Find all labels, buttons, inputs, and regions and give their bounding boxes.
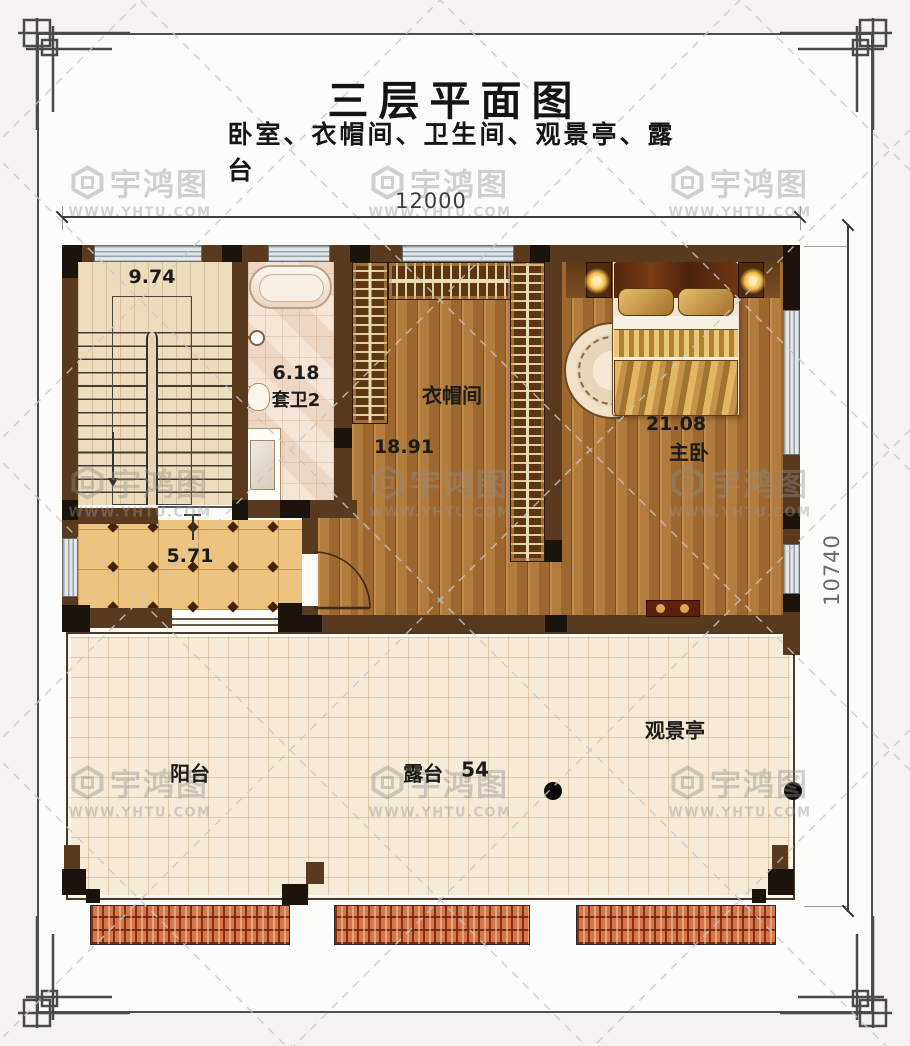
wall-segment <box>62 605 90 632</box>
door-tick <box>192 516 194 540</box>
wall-segment <box>545 540 562 562</box>
door-swing-arc <box>300 548 376 614</box>
stair-direction-arrow <box>112 432 114 478</box>
corner-ornament-icon <box>0 0 130 130</box>
pillar <box>752 889 766 903</box>
page-subtitle: 卧室、衣帽间、卫生间、观景亭、露台 <box>228 115 683 187</box>
dimension-line-top <box>62 216 800 218</box>
sink-basin <box>250 440 275 490</box>
window <box>94 245 202 262</box>
wall-segment <box>783 455 800 513</box>
wall-segment <box>334 262 352 428</box>
wall-segment <box>783 513 800 529</box>
stair-rail <box>146 332 158 505</box>
wall-segment <box>232 500 248 520</box>
pavilion-column <box>544 782 562 800</box>
window <box>783 310 800 455</box>
wall-segment <box>280 500 310 518</box>
wall-segment <box>62 597 78 605</box>
wall-segment <box>82 245 94 262</box>
pillar <box>62 869 86 895</box>
wall-segment <box>330 245 350 262</box>
wall-segment <box>783 245 800 310</box>
wall-segment <box>62 262 78 278</box>
pavilion-column <box>784 782 802 800</box>
vanity-sink <box>243 428 281 502</box>
room-label-bathroom-area: 6.18 <box>273 362 320 384</box>
lamp-glow <box>584 268 610 294</box>
floor-plan-page: 三层平面图 卧室、衣帽间、卫生间、观景亭、露台 <box>0 0 910 1046</box>
dimension-height-label: 10740 <box>820 534 844 606</box>
room-label-bathroom-name: 套卫2 <box>272 386 321 412</box>
wall-segment <box>545 615 567 632</box>
pillar <box>86 889 100 903</box>
terrace-step-line <box>172 618 278 620</box>
window <box>62 538 78 597</box>
wall-segment <box>350 245 370 262</box>
window <box>268 245 330 262</box>
wall-segment <box>322 615 545 632</box>
room-label-balcony: 阳台 <box>170 758 210 787</box>
bed-end-bench <box>646 600 700 617</box>
window <box>783 544 800 594</box>
corner-ornament-icon <box>780 916 910 1046</box>
room-label-master-area: 21.08 <box>646 413 706 435</box>
wall-segment <box>278 603 302 632</box>
window <box>402 245 514 262</box>
wall-segment <box>232 262 248 500</box>
roof-tiles <box>576 905 776 945</box>
room-label-stairwell-area: 9.74 <box>129 266 176 288</box>
wall-segment <box>248 500 280 518</box>
dimension-line-right <box>847 224 849 912</box>
terrace-area: 54 <box>461 758 489 787</box>
roof-tiles <box>90 905 290 945</box>
toilet <box>247 383 270 411</box>
bathtub-basin <box>259 274 324 302</box>
pillar <box>772 845 788 871</box>
dimension-width-label: 12000 <box>395 189 467 213</box>
pillow <box>618 288 674 316</box>
terrace-name: 露台 <box>403 758 443 787</box>
bench-knob <box>656 604 665 613</box>
room-label-cloakroom-area: 18.91 <box>374 436 434 458</box>
roof-tiles <box>334 905 530 945</box>
extension-line <box>804 246 848 247</box>
door-tick <box>184 514 201 516</box>
lamp-glow <box>740 268 766 294</box>
wall-segment <box>62 500 78 520</box>
wall-segment <box>334 428 352 448</box>
pillar <box>768 869 794 895</box>
wall-segment <box>545 262 562 540</box>
wall-segment <box>78 508 158 524</box>
wall-segment <box>242 245 268 262</box>
wall-segment <box>530 245 550 262</box>
wall-segment <box>783 612 800 655</box>
pillar <box>306 862 324 884</box>
bed-runner <box>614 329 738 359</box>
pillar <box>282 884 308 905</box>
wall-segment <box>567 615 783 632</box>
bathtub <box>249 265 332 309</box>
shower-head <box>249 330 265 346</box>
room-label-hall-area: 5.71 <box>167 545 214 567</box>
wall-segment <box>783 529 800 544</box>
bench-knob <box>680 604 689 613</box>
wardrobe-top <box>388 262 512 300</box>
wall-segment <box>300 615 322 632</box>
pillar <box>64 845 80 871</box>
wall-segment <box>370 245 402 262</box>
terrace-step-line <box>172 624 278 626</box>
stair-arrow-head-icon <box>108 478 118 487</box>
room-label-pavilion: 观景亭 <box>645 715 705 744</box>
wall-segment <box>62 278 78 500</box>
wall-segment <box>62 245 82 262</box>
stair-edge-line <box>158 506 232 508</box>
wall-segment <box>550 245 783 262</box>
room-label-master-name: 主卧 <box>669 437 709 466</box>
wall-segment <box>310 500 357 518</box>
wall-segment <box>222 245 242 262</box>
corner-ornament-icon <box>780 0 910 130</box>
wall-segment <box>514 245 530 262</box>
room-label-cloakroom-name: 衣帽间 <box>422 380 482 409</box>
wall-segment <box>202 245 222 262</box>
wall-segment <box>90 608 172 628</box>
room-label-terrace: 露台 54 <box>403 758 489 787</box>
pillow <box>678 288 734 316</box>
wardrobe-right <box>510 262 545 562</box>
wall-segment <box>62 520 78 538</box>
wardrobe-left <box>352 262 388 424</box>
bed-blanket <box>614 360 738 416</box>
wall-segment <box>783 594 800 612</box>
